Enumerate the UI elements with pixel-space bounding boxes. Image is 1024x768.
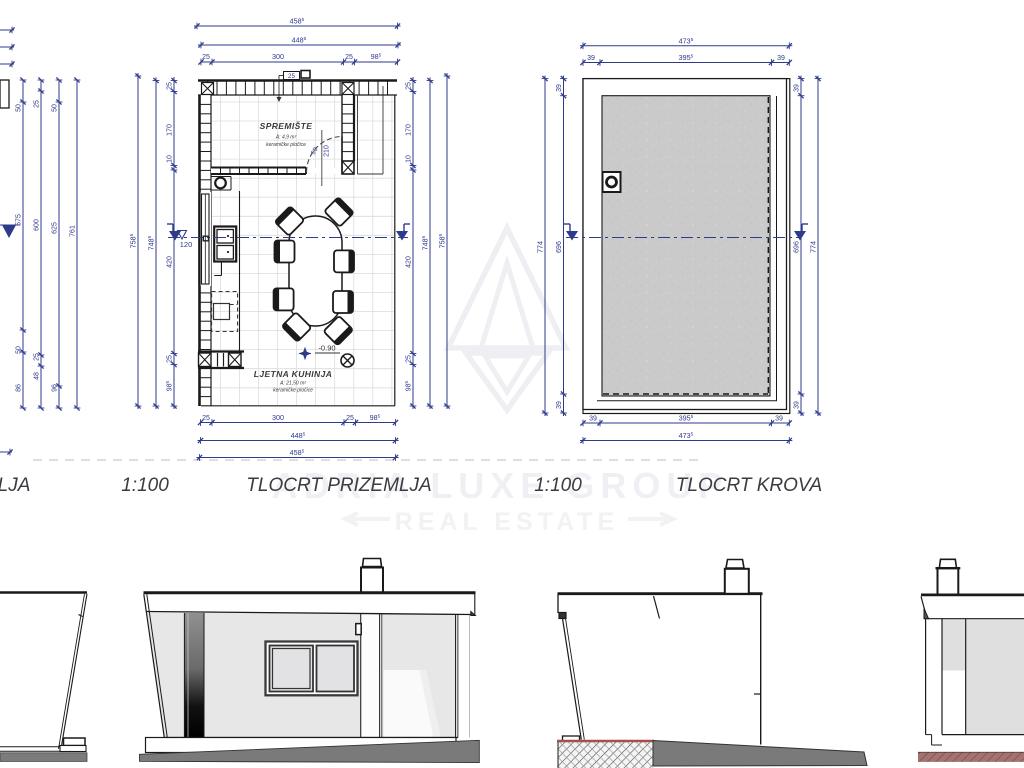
- svg-text:REAL ESTATE: REAL ESTATE: [395, 508, 619, 536]
- svg-text:39: 39: [589, 416, 597, 423]
- svg-text:210: 210: [324, 145, 331, 157]
- svg-text:TLOCRT PRIZEMLJA: TLOCRT PRIZEMLJA: [246, 475, 431, 496]
- svg-text:39: 39: [556, 84, 563, 92]
- svg-text:25: 25: [346, 415, 354, 422]
- svg-text:96: 96: [52, 384, 59, 392]
- svg-text:50: 50: [16, 104, 23, 112]
- svg-text:39: 39: [775, 416, 783, 423]
- svg-text:39: 39: [794, 84, 801, 92]
- svg-text:TLOCRT KROVA: TLOCRT KROVA: [676, 475, 822, 496]
- svg-text:A: 4,9 m²: A: 4,9 m²: [275, 135, 297, 141]
- svg-text:625: 625: [52, 222, 59, 234]
- svg-text:39: 39: [794, 401, 801, 409]
- svg-text:25: 25: [202, 415, 210, 422]
- svg-text:761: 761: [70, 225, 77, 237]
- svg-text:86: 86: [16, 384, 23, 392]
- svg-text:25: 25: [167, 355, 174, 363]
- svg-text:1:100: 1:100: [121, 475, 169, 496]
- svg-text:120: 120: [180, 240, 193, 249]
- svg-text:LJETNA KUHINJA: LJETNA KUHINJA: [254, 369, 333, 379]
- svg-text:420: 420: [167, 256, 174, 268]
- svg-text:keramičke pločice: keramičke pločice: [273, 388, 313, 394]
- svg-text:39: 39: [777, 55, 785, 62]
- svg-text:25: 25: [406, 82, 413, 90]
- svg-text:25: 25: [34, 353, 41, 361]
- svg-text:A: 21,50 m²: A: 21,50 m²: [279, 381, 306, 387]
- svg-text:25: 25: [202, 54, 210, 61]
- svg-text:25: 25: [406, 355, 413, 363]
- svg-text:-0.90: -0.90: [318, 344, 335, 353]
- svg-text:25: 25: [288, 73, 295, 80]
- svg-text:774: 774: [536, 241, 545, 253]
- svg-text:1:100: 1:100: [534, 475, 582, 496]
- svg-text:50: 50: [52, 104, 59, 112]
- svg-text:575: 575: [16, 214, 23, 226]
- svg-text:SPREMIŠTE: SPREMIŠTE: [260, 120, 313, 131]
- svg-text:keramičke pločice: keramičke pločice: [266, 142, 306, 148]
- svg-text:600: 600: [34, 219, 41, 231]
- svg-text:39: 39: [556, 401, 563, 409]
- svg-text:696: 696: [556, 241, 563, 253]
- svg-text:48: 48: [34, 372, 41, 380]
- svg-text:25: 25: [345, 54, 353, 61]
- svg-text:300: 300: [272, 52, 284, 61]
- svg-text:50: 50: [16, 346, 23, 354]
- svg-text:10: 10: [406, 155, 413, 163]
- svg-text:774: 774: [809, 241, 818, 253]
- svg-text:170: 170: [167, 124, 174, 136]
- svg-text:300: 300: [272, 413, 284, 422]
- svg-text:170: 170: [406, 124, 413, 136]
- svg-text:39: 39: [587, 55, 595, 62]
- svg-text:696: 696: [794, 241, 801, 253]
- svg-text:25: 25: [167, 82, 174, 90]
- svg-text:420: 420: [406, 256, 413, 268]
- svg-text:10: 10: [167, 155, 174, 163]
- svg-text:25: 25: [34, 100, 41, 108]
- svg-text:LJA: LJA: [0, 475, 30, 496]
